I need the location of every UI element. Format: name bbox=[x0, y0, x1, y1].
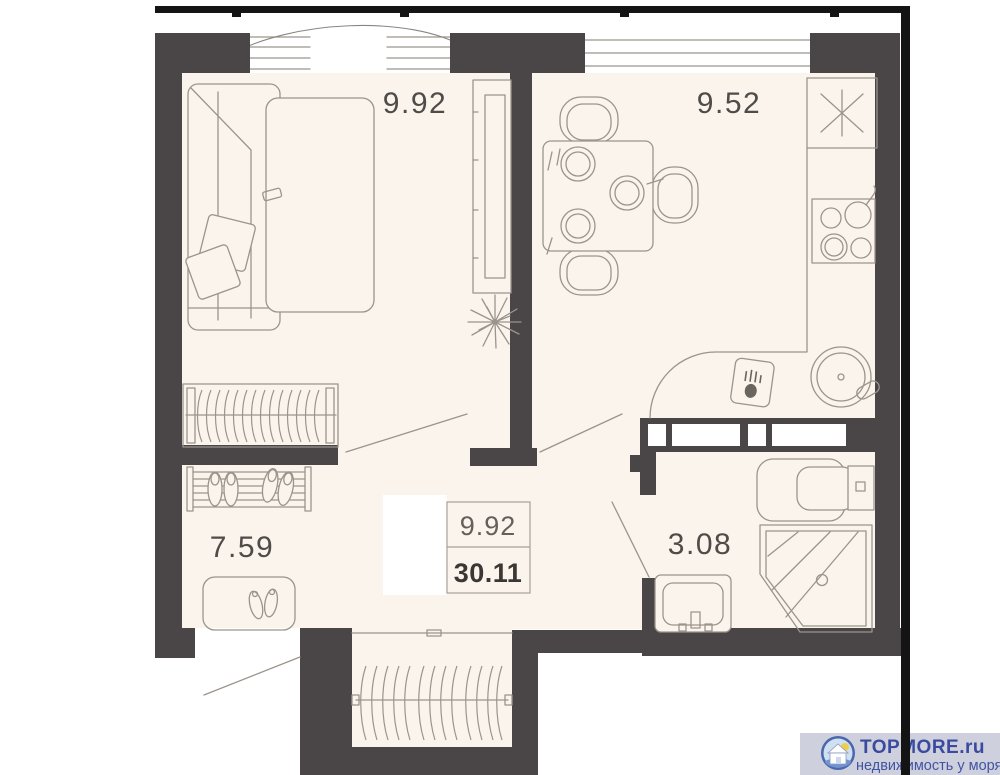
bedroom-window-right bbox=[387, 33, 450, 73]
bedroom-area-label: 9.92 bbox=[383, 87, 447, 120]
bathroom-sink-icon bbox=[655, 575, 731, 632]
entrance-opening bbox=[195, 628, 300, 662]
watermark: TOPMORE.ru недвижимость у моря bbox=[800, 733, 1000, 775]
dining-table bbox=[543, 141, 653, 251]
floor-plan: 9.92 bbox=[0, 0, 1000, 775]
chair-right bbox=[652, 167, 698, 223]
floorplan-screenshot: 9.92 bbox=[0, 0, 1000, 775]
wall-closet-bottom bbox=[300, 747, 538, 775]
label-cover-patch bbox=[383, 495, 447, 595]
wall-partition-foot bbox=[470, 448, 537, 466]
wall-bath-door-tab bbox=[630, 455, 640, 472]
balcony-door-opening bbox=[310, 33, 387, 73]
total-area-value: 30.11 bbox=[454, 558, 523, 588]
kitchen-area-label: 9.52 bbox=[697, 87, 761, 120]
frame-right-line bbox=[901, 6, 910, 775]
wall-bottom-hall bbox=[512, 630, 658, 653]
toilet-cistern bbox=[848, 466, 874, 510]
wall-partition-vertical bbox=[510, 73, 532, 450]
topmore-logo-icon bbox=[821, 736, 855, 770]
wall-hall-bedroom bbox=[182, 445, 338, 465]
watermark-tagline: недвижимость у моря bbox=[856, 758, 1000, 774]
hall-area-label: 7.59 bbox=[210, 531, 274, 564]
frame-top-line bbox=[155, 6, 910, 13]
toilet-seat bbox=[797, 467, 855, 510]
wall-bath-left-upper bbox=[640, 452, 656, 495]
wall-left bbox=[155, 33, 182, 658]
bathroom-area-label: 3.08 bbox=[668, 528, 732, 561]
wall-bottom-left-foot bbox=[182, 628, 195, 658]
area-table: 9.92 30.11 bbox=[383, 495, 530, 595]
wall-top-middle bbox=[450, 33, 585, 73]
bedroom-window-left bbox=[250, 33, 310, 73]
living-area-value: 9.92 bbox=[460, 511, 517, 541]
wall-right bbox=[875, 33, 900, 656]
watermark-brand: TOPMORE.ru bbox=[860, 737, 985, 758]
bed-mattress bbox=[266, 98, 374, 312]
